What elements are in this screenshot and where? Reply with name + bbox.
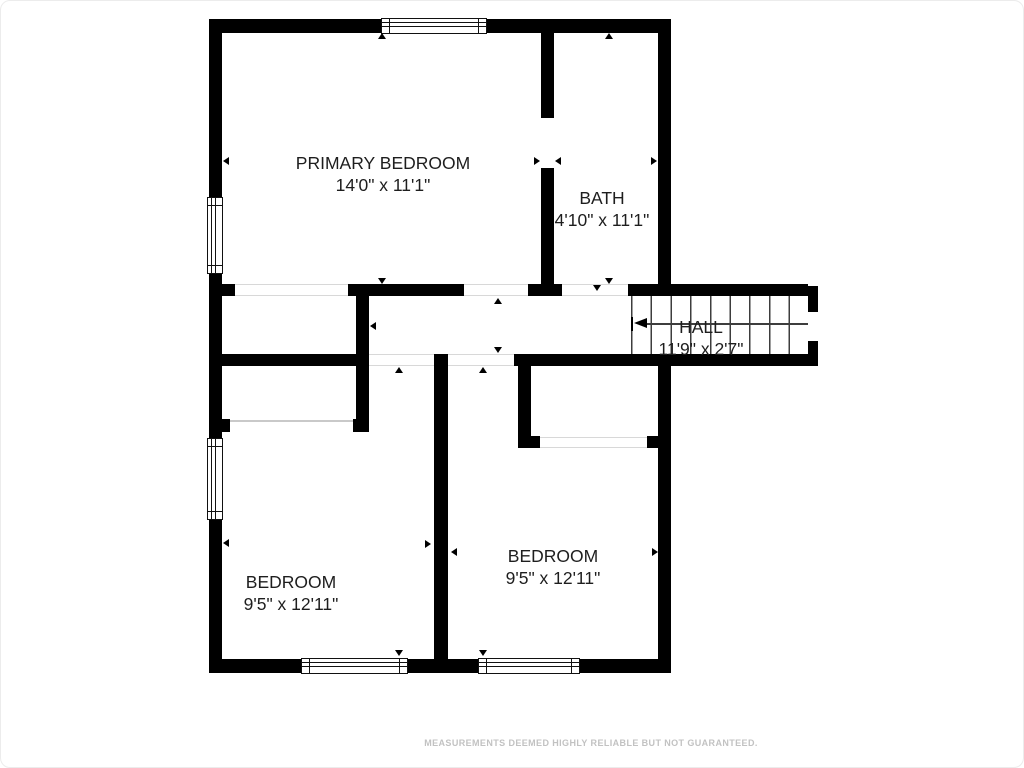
dimension-arrow-icon bbox=[370, 322, 376, 330]
room-dimensions: 4'10" x 11'1" bbox=[555, 209, 650, 231]
wall-segment bbox=[808, 341, 818, 366]
room-label-primary-bedroom: PRIMARY BEDROOM 14'0" x 11'1" bbox=[296, 152, 470, 196]
window-glazing bbox=[211, 198, 216, 273]
room-name: BATH bbox=[555, 187, 650, 209]
window-symbol bbox=[207, 438, 223, 520]
dimension-arrow-icon bbox=[395, 650, 403, 656]
stair-direction-arrow-icon bbox=[634, 318, 647, 328]
dimension-arrow-icon bbox=[534, 157, 540, 165]
floor-plan-page: PRIMARY BEDROOM 14'0" x 11'1" BATH 4'10"… bbox=[0, 0, 1024, 768]
room-name: HALL bbox=[659, 316, 744, 338]
window-symbol bbox=[381, 18, 487, 34]
dimension-arrow-icon bbox=[451, 548, 457, 556]
wall-segment bbox=[434, 354, 448, 673]
room-label-hall: HALL 11'9" x 2'7" bbox=[659, 316, 744, 360]
room-label-bedroom-left: BEDROOM 9'5" x 12'11" bbox=[244, 571, 339, 615]
dimension-arrow-icon bbox=[605, 278, 613, 284]
window-glazing bbox=[302, 662, 407, 667]
room-name: PRIMARY BEDROOM bbox=[296, 152, 470, 174]
room-name: BEDROOM bbox=[506, 545, 601, 567]
wall-segment bbox=[209, 419, 230, 432]
door-opening bbox=[464, 284, 528, 296]
wall-segment bbox=[209, 19, 222, 673]
wall-segment bbox=[209, 354, 369, 366]
wall-segment bbox=[541, 168, 554, 296]
dimension-arrow-icon bbox=[223, 157, 229, 165]
stair-direction-arrow-tail bbox=[631, 317, 633, 331]
closet-opening bbox=[235, 284, 348, 296]
dimension-arrow-icon bbox=[494, 347, 502, 353]
dimension-arrow-icon bbox=[605, 33, 613, 39]
room-dimensions: 9'5" x 12'11" bbox=[506, 567, 601, 589]
window-symbol bbox=[207, 197, 223, 274]
dimension-arrow-icon bbox=[479, 650, 487, 656]
dimension-arrow-icon bbox=[555, 157, 561, 165]
closet-opening bbox=[540, 437, 647, 448]
wall-segment bbox=[353, 419, 369, 432]
dimension-arrow-icon bbox=[593, 285, 601, 291]
wall-segment bbox=[209, 284, 235, 296]
window-glazing bbox=[382, 22, 486, 27]
door-opening bbox=[448, 354, 514, 366]
wall-segment bbox=[658, 354, 671, 673]
window-glazing bbox=[479, 662, 579, 667]
dimension-arrow-icon bbox=[378, 33, 386, 39]
wall-segment bbox=[628, 284, 808, 296]
closet-door-line bbox=[230, 420, 353, 422]
wall-segment bbox=[658, 19, 671, 296]
dimension-arrow-icon bbox=[378, 278, 386, 284]
dimension-arrow-icon bbox=[479, 367, 487, 373]
room-name: BEDROOM bbox=[244, 571, 339, 593]
window-glazing bbox=[211, 439, 216, 519]
dimension-arrow-icon bbox=[425, 540, 431, 548]
window-symbol bbox=[301, 658, 408, 674]
wall-segment bbox=[518, 436, 540, 448]
room-dimensions: 9'5" x 12'11" bbox=[244, 593, 339, 615]
wall-segment bbox=[647, 436, 671, 448]
disclaimer-text: MEASUREMENTS DEEMED HIGHLY RELIABLE BUT … bbox=[424, 738, 758, 748]
room-label-bath: BATH 4'10" x 11'1" bbox=[555, 187, 650, 231]
room-label-bedroom-right: BEDROOM 9'5" x 12'11" bbox=[506, 545, 601, 589]
room-dimensions: 11'9" x 2'7" bbox=[659, 338, 744, 360]
dimension-arrow-icon bbox=[652, 548, 658, 556]
dimension-arrow-icon bbox=[494, 298, 502, 304]
dimension-arrow-icon bbox=[651, 157, 657, 165]
wall-segment bbox=[541, 33, 554, 118]
room-dimensions: 14'0" x 11'1" bbox=[296, 174, 470, 196]
dimension-arrow-icon bbox=[223, 539, 229, 547]
wall-segment bbox=[356, 294, 369, 429]
door-opening bbox=[369, 354, 434, 366]
dimension-arrow-icon bbox=[395, 367, 403, 373]
window-symbol bbox=[478, 658, 580, 674]
wall-segment bbox=[808, 286, 818, 312]
